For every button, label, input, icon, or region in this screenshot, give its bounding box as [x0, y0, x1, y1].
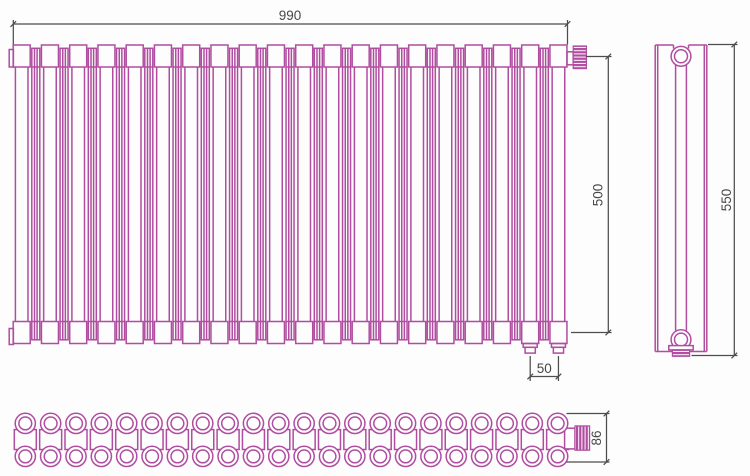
bottom-fitting-left: [523, 344, 537, 354]
gap-connector: [60, 48, 68, 340]
bottom-fitting-right: [551, 344, 565, 354]
side-view: [655, 45, 707, 356]
gap-connector: [427, 48, 435, 340]
tube-top-header: [183, 45, 200, 67]
tube-top-header: [211, 45, 228, 67]
tube-top-header: [550, 45, 567, 67]
gap-connector: [286, 48, 294, 340]
gap-connector: [371, 48, 379, 340]
gap-connector: [201, 48, 209, 340]
tube-bottom-header: [380, 322, 397, 344]
bottom-view: [14, 413, 589, 466]
front-view: [9, 45, 586, 353]
left-connection-stub-bottom: [9, 329, 13, 345]
bottom-view-valve-knob: [575, 426, 590, 450]
tube-bottom-header: [267, 322, 284, 344]
tube-bottom-header: [126, 322, 143, 344]
dimension-label-50: 50: [537, 361, 552, 376]
drawing-canvas: 990 500 550 50 86: [0, 0, 750, 476]
dimension-overall-height: 550: [692, 42, 738, 359]
gap-connector: [117, 48, 125, 340]
gap-connector: [314, 48, 322, 340]
valve-stem: [567, 52, 573, 65]
gap-connector: [88, 48, 96, 340]
tube-bottom-header: [70, 322, 87, 344]
dimension-label-86: 86: [589, 430, 604, 445]
tube-top-header: [296, 45, 313, 67]
tube-bottom-header: [296, 322, 313, 344]
dimension-overall-width: 990: [11, 8, 571, 45]
gap-connector: [456, 48, 464, 340]
tube-bottom-header: [154, 322, 171, 344]
front-view-tubes: [13, 45, 567, 344]
tube-top-header: [239, 45, 256, 67]
tube-bottom-header: [183, 322, 200, 344]
thermostat-valve: [567, 46, 586, 69]
tube-top-header: [267, 45, 284, 67]
tube-bottom-header: [211, 322, 228, 344]
gap-connector: [32, 48, 40, 340]
gap-connector: [258, 48, 266, 340]
tube-bottom-header: [437, 322, 454, 344]
tube-bottom-header: [352, 322, 369, 344]
tube-bottom-header: [522, 322, 539, 344]
radiator-technical-drawing: 990 500 550 50 86: [0, 0, 750, 476]
tube-bottom-header: [550, 322, 567, 344]
tube-bottom-header: [239, 322, 256, 344]
gap-connector: [540, 48, 548, 340]
valve-knob: [573, 46, 586, 69]
tube-top-header: [465, 45, 482, 67]
tube-top-header: [522, 45, 539, 67]
fitting-body: [553, 347, 563, 353]
tube-top-header: [437, 45, 454, 67]
tube-top-header: [409, 45, 426, 67]
tube-top-header: [126, 45, 143, 67]
dimension-connection-spacing: 50: [527, 356, 561, 381]
tube-top-header: [41, 45, 58, 67]
tube-top-header: [154, 45, 171, 67]
tube-top-header: [13, 45, 30, 67]
tube-top-header: [352, 45, 369, 67]
tube-bottom-header: [465, 322, 482, 344]
tube-top-header: [380, 45, 397, 67]
tube-top-header: [98, 45, 115, 67]
tube-bottom-header: [324, 322, 341, 344]
dimension-label-500: 500: [591, 184, 606, 207]
tube-top-header: [324, 45, 341, 67]
tube-top-header: [70, 45, 87, 67]
gap-connector: [512, 48, 520, 340]
tube-bottom-header: [98, 322, 115, 344]
side-valve-flange: [669, 346, 693, 350]
gap-connector: [230, 48, 238, 340]
fitting-body: [525, 347, 535, 353]
dimension-label-550: 550: [719, 189, 734, 212]
gap-connector: [173, 48, 181, 340]
side-valve-knob: [672, 350, 689, 356]
dimension-label-990: 990: [279, 8, 302, 23]
bottom-view-valve-stem: [565, 428, 575, 449]
gap-connector: [343, 48, 351, 340]
tube-bottom-header: [409, 322, 426, 344]
tube-bottom-header: [13, 322, 30, 344]
gap-connector: [484, 48, 492, 340]
tube-bottom-header: [41, 322, 58, 344]
gap-connector: [145, 48, 153, 340]
left-connection-stub-top: [9, 50, 13, 68]
gap-connector: [399, 48, 407, 340]
tube-top-header: [493, 45, 510, 67]
tube-bottom-header: [493, 322, 510, 344]
bottom-view-tube-circles: [15, 413, 568, 466]
dimension-valve-height: 500: [571, 54, 612, 336]
